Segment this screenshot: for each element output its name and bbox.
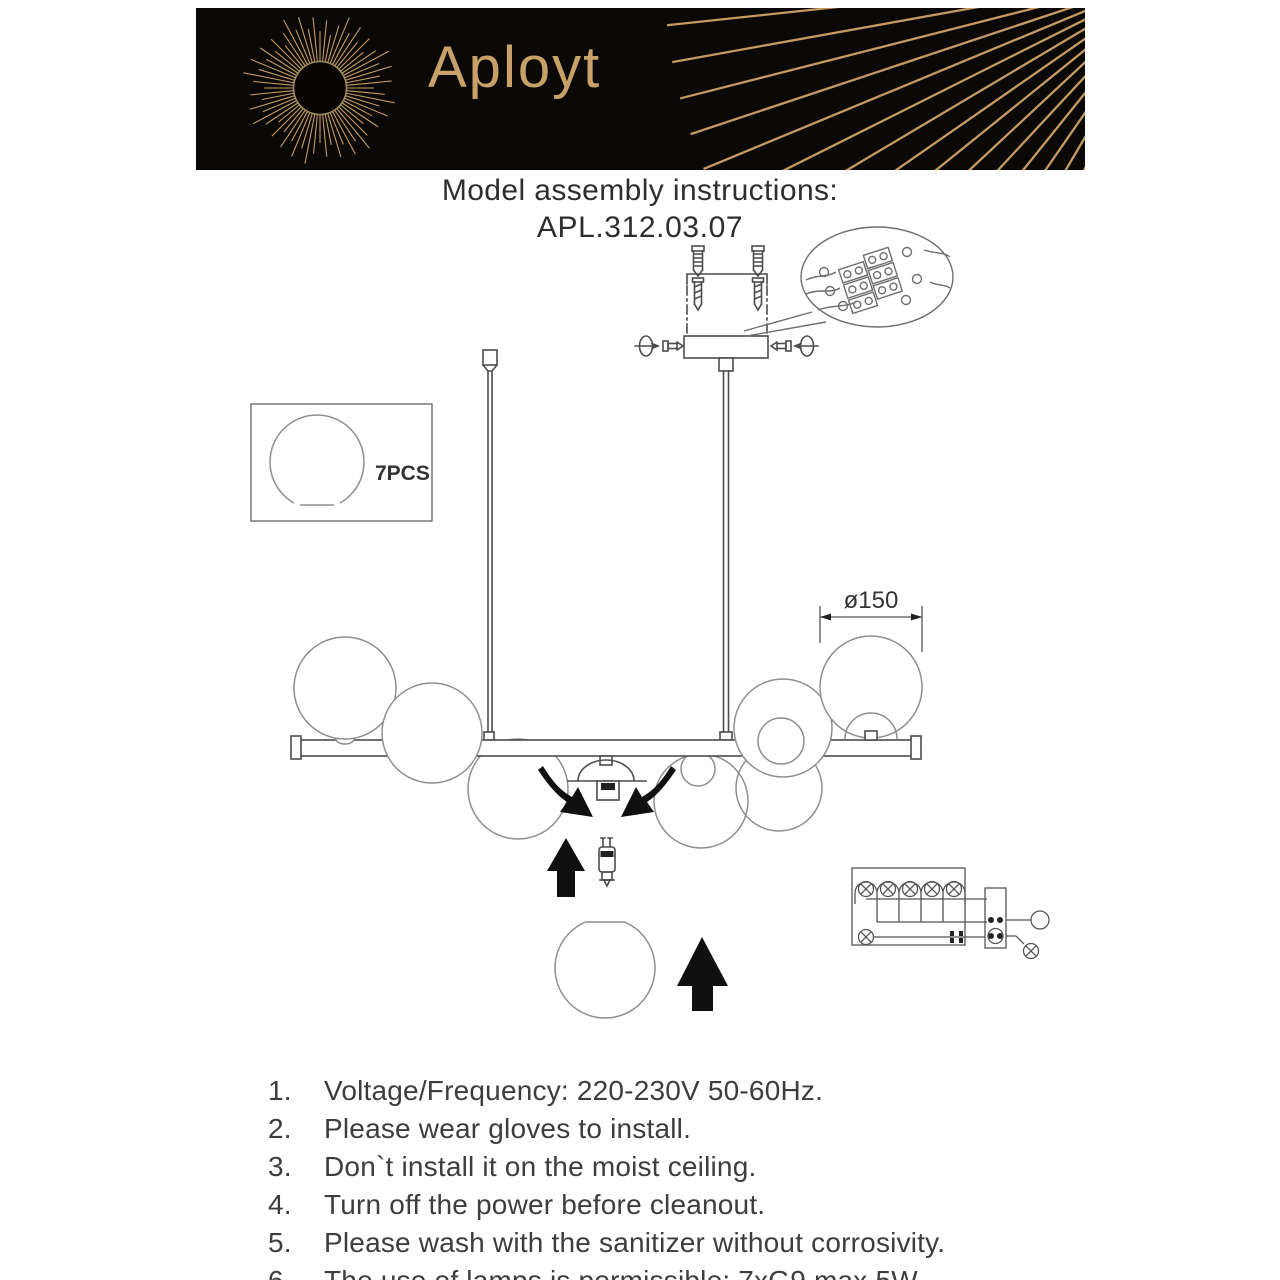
suspension-rod-right (720, 371, 732, 740)
ceiling-anchors (687, 246, 767, 335)
up-arrow-icon-2 (677, 937, 728, 1011)
parts-box: 7PCS (251, 404, 432, 521)
instruction-item: 6. The use of lamps is permissible: 7xG9… (268, 1262, 1228, 1280)
up-arrow-icon (547, 838, 585, 897)
ceiling-canopy (684, 336, 768, 371)
wiring-diagram (852, 868, 1049, 959)
instruction-item: 1. Voltage/Frequency: 220-230V 50-60Hz. (268, 1072, 1228, 1110)
parts-count-label: 7PCS (375, 462, 430, 485)
suspension-rod-left (483, 350, 497, 740)
instruction-item: 4. Turn off the power before cleanout. (268, 1186, 1228, 1224)
instruction-sheet: Aployt Model assembly instructions: APL.… (0, 0, 1280, 1280)
terminal-block-callout (744, 227, 953, 336)
glass-globe-detached (555, 914, 655, 1018)
instruction-list: 1. Voltage/Frequency: 220-230V 50-60Hz. … (228, 1072, 1228, 1280)
instruction-item: 3. Don`t install it on the moist ceiling… (268, 1148, 1228, 1186)
g9-bulb-icon (599, 838, 615, 886)
instruction-item: 2. Please wear gloves to install. (268, 1110, 1228, 1148)
instruction-item: 5. Please wash with the sanitizer withou… (268, 1224, 1228, 1262)
globe-diameter-label: ø150 (844, 587, 899, 614)
